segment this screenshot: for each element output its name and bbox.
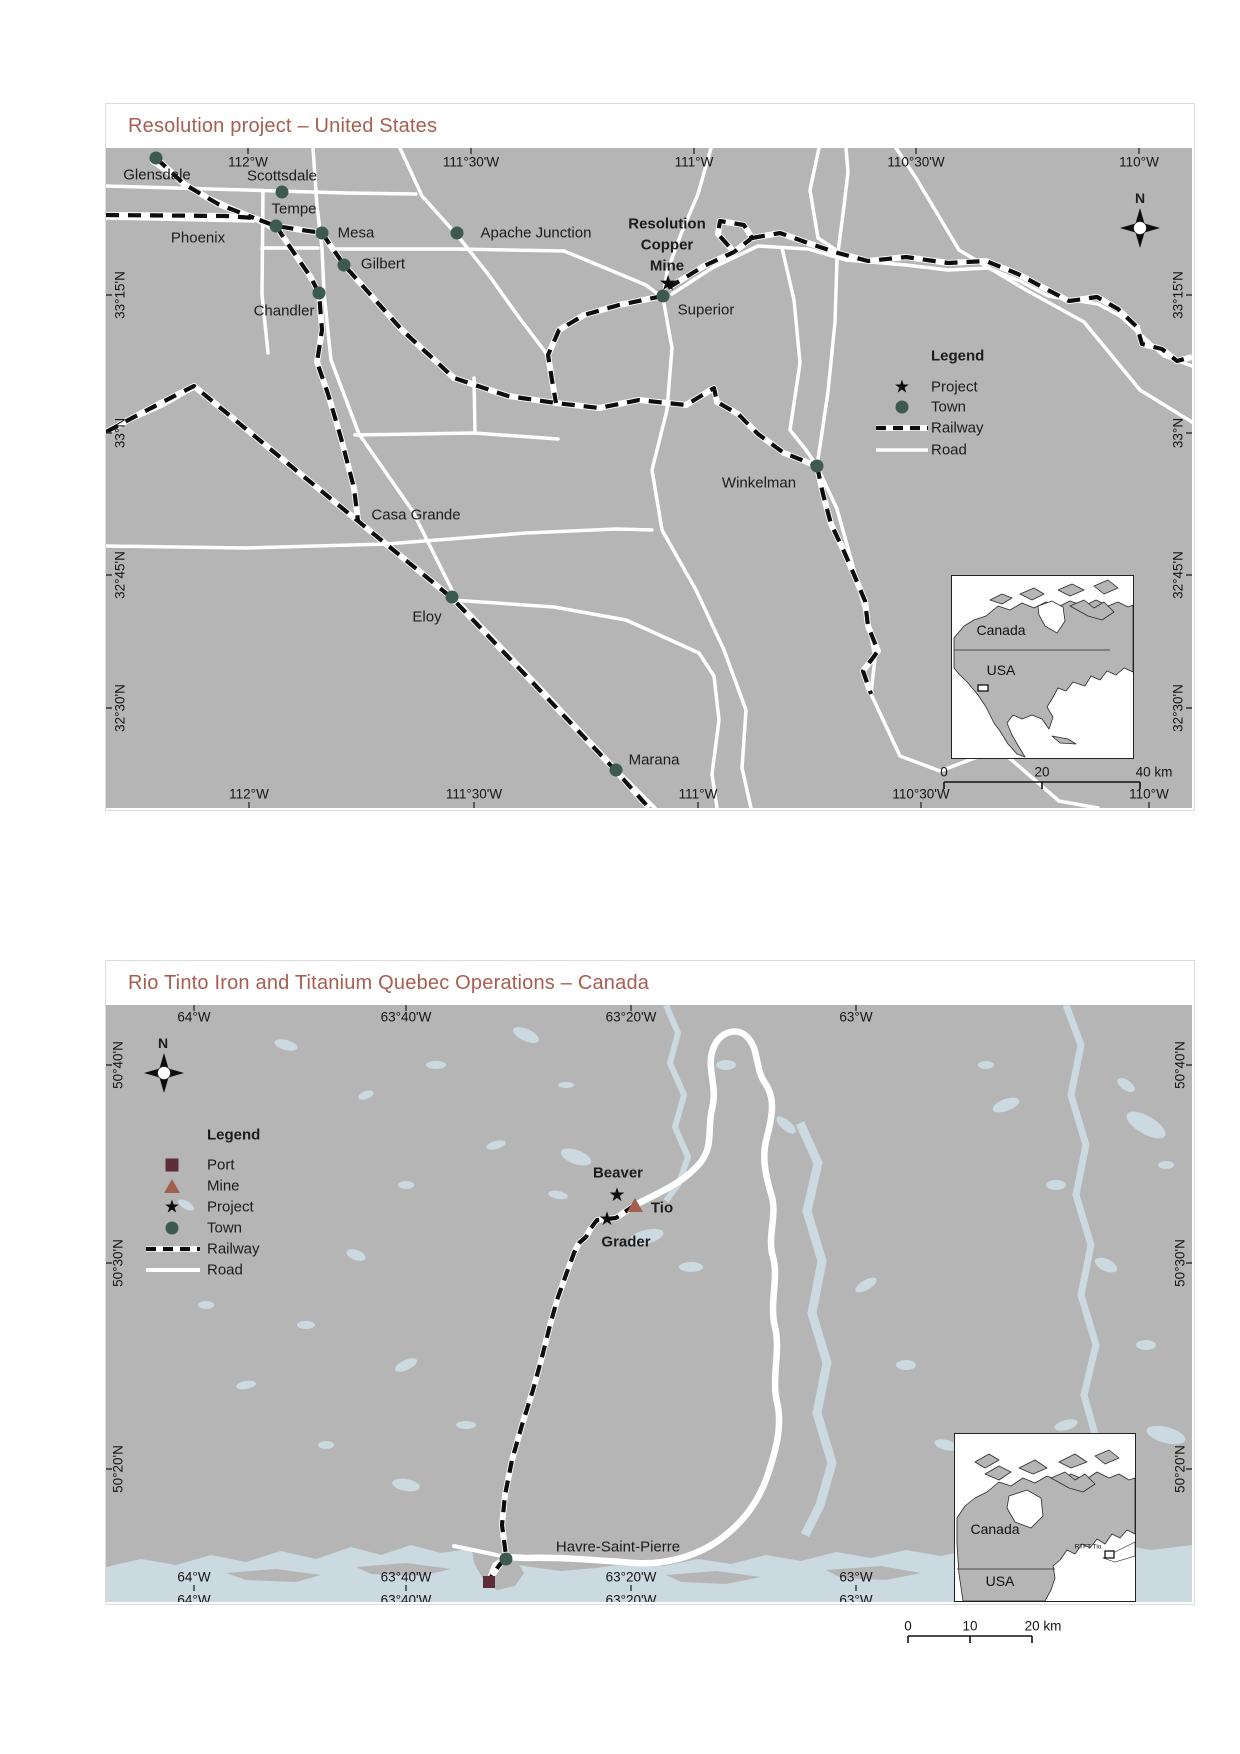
beaver-star-icon: ★ xyxy=(608,1186,625,1205)
lat-label: 33°15'N xyxy=(1171,271,1186,319)
inset-rtft-tio-label: RTFT Tio xyxy=(1075,1544,1102,1551)
port-marker xyxy=(483,1576,495,1588)
lat-label: 33°N xyxy=(1171,418,1186,448)
town-label: Mesa xyxy=(338,225,375,242)
bottom-map-title: Rio Tinto Iron and Titanium Quebec Opera… xyxy=(106,961,1194,1005)
scalebar-40km: 40 km xyxy=(1136,765,1173,780)
legend-road-icon xyxy=(144,1265,202,1275)
beaver-label: Beaver xyxy=(593,1165,643,1182)
legend-railway-icon xyxy=(144,1244,202,1254)
lon-label-cut: 64°W xyxy=(177,1593,210,1603)
lat-label: 50°20'N xyxy=(1173,1445,1188,1493)
lon-label: 110°30'W xyxy=(892,787,949,802)
scalebar-20: 20 xyxy=(1034,765,1049,780)
tio-mine-icon xyxy=(627,1198,643,1212)
legend-title: Legend xyxy=(931,348,984,365)
top-map-title: Resolution project – United States xyxy=(106,104,1194,148)
lon-label: 111°W xyxy=(679,787,718,802)
legend-project-icon: ★ xyxy=(894,378,910,396)
legend-railway-icon xyxy=(874,423,930,433)
town-marker-scottsdale xyxy=(276,186,289,199)
lon-label: 110°30'W xyxy=(887,155,944,170)
legend-road-icon xyxy=(874,445,930,455)
town-marker-apache-junction xyxy=(451,227,464,240)
lon-label: 63°20'W xyxy=(606,1570,657,1585)
lon-label: 110°W xyxy=(1119,155,1159,170)
project-label: Resolution Copper Mine xyxy=(628,214,706,277)
legend-railway-label: Railway xyxy=(207,1241,260,1258)
town-label: Eloy xyxy=(412,609,441,626)
lat-label: 32°45'N xyxy=(1171,551,1186,599)
legend-town-icon xyxy=(896,401,909,414)
compass-icon xyxy=(1118,206,1162,250)
town-label: Tempe xyxy=(271,201,316,218)
lon-label: 64°W xyxy=(177,1570,210,1585)
legend-mine-label: Mine xyxy=(207,1178,240,1195)
town-label: Superior xyxy=(678,302,735,319)
town-label: Casa Grande xyxy=(371,507,460,524)
legend-title: Legend xyxy=(207,1127,260,1144)
legend-mine-icon xyxy=(164,1179,180,1193)
legend-project-icon: ★ xyxy=(164,1198,180,1216)
legend-port-label: Port xyxy=(207,1157,235,1174)
lon-label-cut: 63°20'W xyxy=(606,1593,657,1603)
lat-label: 50°20'N xyxy=(111,1445,126,1493)
locator-extent-box xyxy=(978,685,988,691)
town-label: Glensdale xyxy=(123,167,191,184)
lat-label: 33°N xyxy=(113,418,128,448)
rtit-map: 64°W 63°40'W 63°20'W 63°W 64°W 63°40'W 6… xyxy=(106,1005,1192,1602)
lon-label-cut: 63°40'W xyxy=(381,1593,432,1603)
resolution-map: 112°W 111°30'W 111°W 110°30'W 110°W 112°… xyxy=(106,148,1192,808)
locator-extent-box xyxy=(1105,1551,1114,1558)
resolution-map-panel: Resolution project – United States xyxy=(105,103,1195,811)
compass-north-label: N xyxy=(158,1035,168,1051)
legend-project-label: Project xyxy=(207,1199,254,1216)
bottom-scalebar-line xyxy=(900,1632,1045,1646)
inset-canada-label: Canada xyxy=(976,622,1025,638)
town-label: Winkelman xyxy=(722,475,796,492)
town-label: Chandler xyxy=(254,303,315,320)
town-label: Phoenix xyxy=(171,230,225,247)
inset-usa-label: USA xyxy=(987,662,1016,678)
havre-saint-pierre-label: Havre-Saint-Pierre xyxy=(556,1539,680,1556)
town-marker-marana xyxy=(610,764,623,777)
lon-label: 111°W xyxy=(675,155,714,170)
town-label: Gilbert xyxy=(361,256,405,273)
report-page: Resolution project – United States xyxy=(0,0,1240,1754)
lon-label: 111°30'W xyxy=(446,787,502,802)
lon-label: 110°W xyxy=(1129,787,1169,802)
inset-usa-label: USA xyxy=(986,1573,1015,1589)
legend-town-label: Town xyxy=(207,1220,242,1237)
town-marker-eloy xyxy=(446,591,459,604)
top-inset-locator-map: Canada USA xyxy=(951,575,1134,759)
lat-label: 50°40'N xyxy=(111,1041,126,1089)
town-marker-mesa xyxy=(316,227,329,240)
lat-label: 32°30'N xyxy=(113,684,128,732)
legend-road-label: Road xyxy=(207,1262,243,1279)
rtit-map-panel: Rio Tinto Iron and Titanium Quebec Opera… xyxy=(105,960,1195,1605)
lon-label: 63°W xyxy=(839,1570,872,1585)
legend-port-icon xyxy=(166,1159,179,1172)
town-marker-chandler xyxy=(313,287,326,300)
lon-label: 111°30'W xyxy=(443,155,499,170)
town-marker-gilbert xyxy=(338,259,351,272)
lon-label: 63°40'W xyxy=(381,1010,432,1025)
lat-label: 33°15'N xyxy=(113,271,128,319)
town-label: Marana xyxy=(629,752,680,769)
lon-label: 63°W xyxy=(839,1010,872,1025)
legend-project-label: Project xyxy=(931,379,978,396)
lon-label: 112°W xyxy=(229,787,269,802)
lat-label: 50°40'N xyxy=(1173,1041,1188,1089)
lat-label: 32°45'N xyxy=(113,551,128,599)
legend-road-label: Road xyxy=(931,442,967,459)
grader-label: Grader xyxy=(601,1234,650,1251)
town-marker-havre-saint-pierre xyxy=(500,1553,513,1566)
legend-town-label: Town xyxy=(931,399,966,416)
lat-label: 32°30'N xyxy=(1171,684,1186,732)
lon-label: 64°W xyxy=(177,1010,210,1025)
lon-label-cut: 63°W xyxy=(839,1593,872,1603)
compass-icon xyxy=(142,1051,186,1095)
grader-star-icon: ★ xyxy=(598,1210,615,1229)
top-scalebar-line xyxy=(944,782,1140,789)
canada-outline xyxy=(955,1434,1135,1601)
town-marker-tempe xyxy=(270,220,283,233)
lon-label: 63°40'W xyxy=(381,1570,432,1585)
town-label: Apache Junction xyxy=(481,225,592,242)
lon-label: 63°20'W xyxy=(606,1010,657,1025)
tio-label: Tio xyxy=(651,1200,673,1217)
north-america-outline xyxy=(952,576,1133,758)
legend-railway-label: Railway xyxy=(931,420,984,437)
town-marker-glensdale xyxy=(150,152,163,165)
lat-label: 50°30'N xyxy=(1173,1239,1188,1287)
compass-north-label: N xyxy=(1135,190,1145,206)
town-marker-winkelman xyxy=(811,460,824,473)
town-label: Scottsdale xyxy=(247,168,317,185)
scalebar-0: 0 xyxy=(940,765,948,780)
inset-canada-label: Canada xyxy=(970,1521,1019,1537)
lat-label: 50°30'N xyxy=(111,1239,126,1287)
legend-town-icon xyxy=(166,1222,179,1235)
bottom-inset-locator-map: Canada USA RTFT Tio xyxy=(954,1433,1136,1602)
